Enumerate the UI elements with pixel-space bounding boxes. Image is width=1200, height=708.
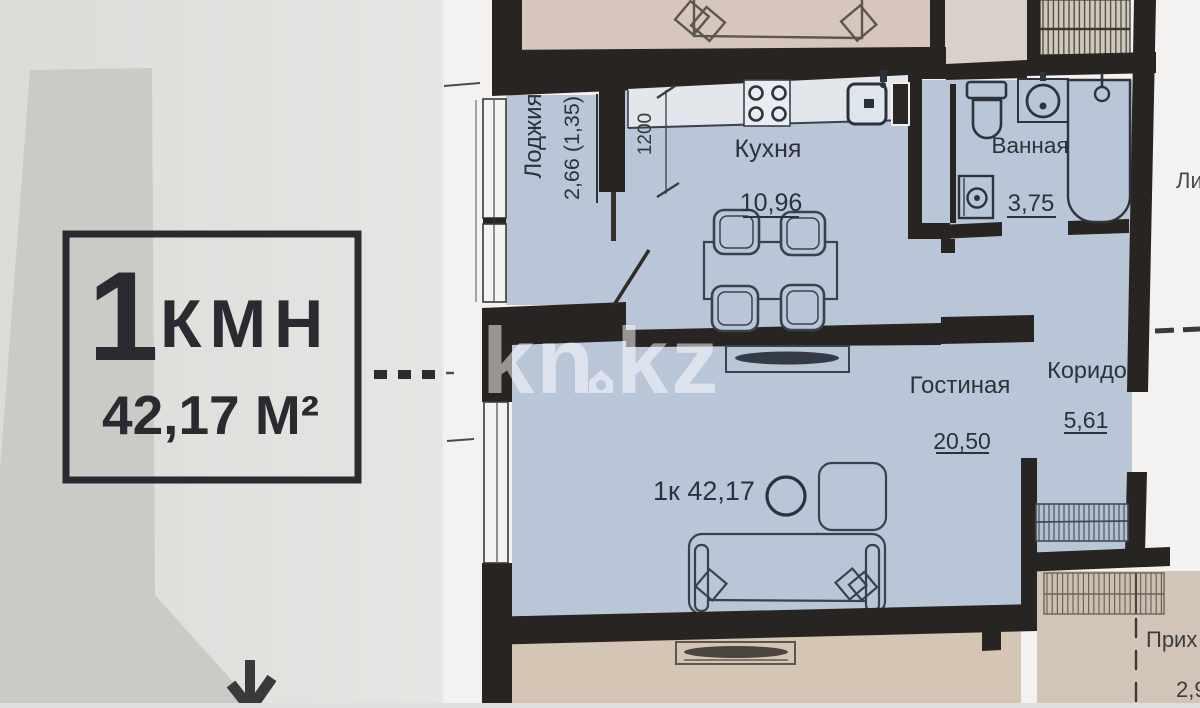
- svg-text:5,61: 5,61: [1064, 407, 1109, 433]
- svg-text:Лоджия: Лоджия: [520, 93, 547, 178]
- svg-text:1к 42,17: 1к 42,17: [653, 476, 755, 506]
- svg-text:Ли: Ли: [1176, 168, 1200, 193]
- svg-text:2,9: 2,9: [1176, 677, 1200, 702]
- svg-text:1: 1: [88, 245, 159, 387]
- svg-text:Прих: Прих: [1146, 627, 1197, 652]
- svg-text:42,17 М²: 42,17 М²: [102, 384, 319, 446]
- svg-text:Коридо: Коридо: [1047, 357, 1127, 383]
- svg-text:КМН: КМН: [160, 286, 331, 362]
- svg-text:2,66 (1,35): 2,66 (1,35): [560, 96, 584, 200]
- svg-text:kz: kz: [616, 308, 721, 413]
- svg-text:3,75: 3,75: [1008, 190, 1055, 217]
- svg-text:Ванная: Ванная: [991, 133, 1068, 158]
- svg-text:10,96: 10,96: [740, 189, 803, 217]
- svg-text:Гостиная: Гостиная: [910, 372, 1011, 399]
- svg-text:1200: 1200: [635, 113, 656, 155]
- svg-text:Кухня: Кухня: [735, 135, 802, 163]
- svg-text:20,50: 20,50: [933, 428, 991, 454]
- svg-text:kn: kn: [482, 308, 596, 413]
